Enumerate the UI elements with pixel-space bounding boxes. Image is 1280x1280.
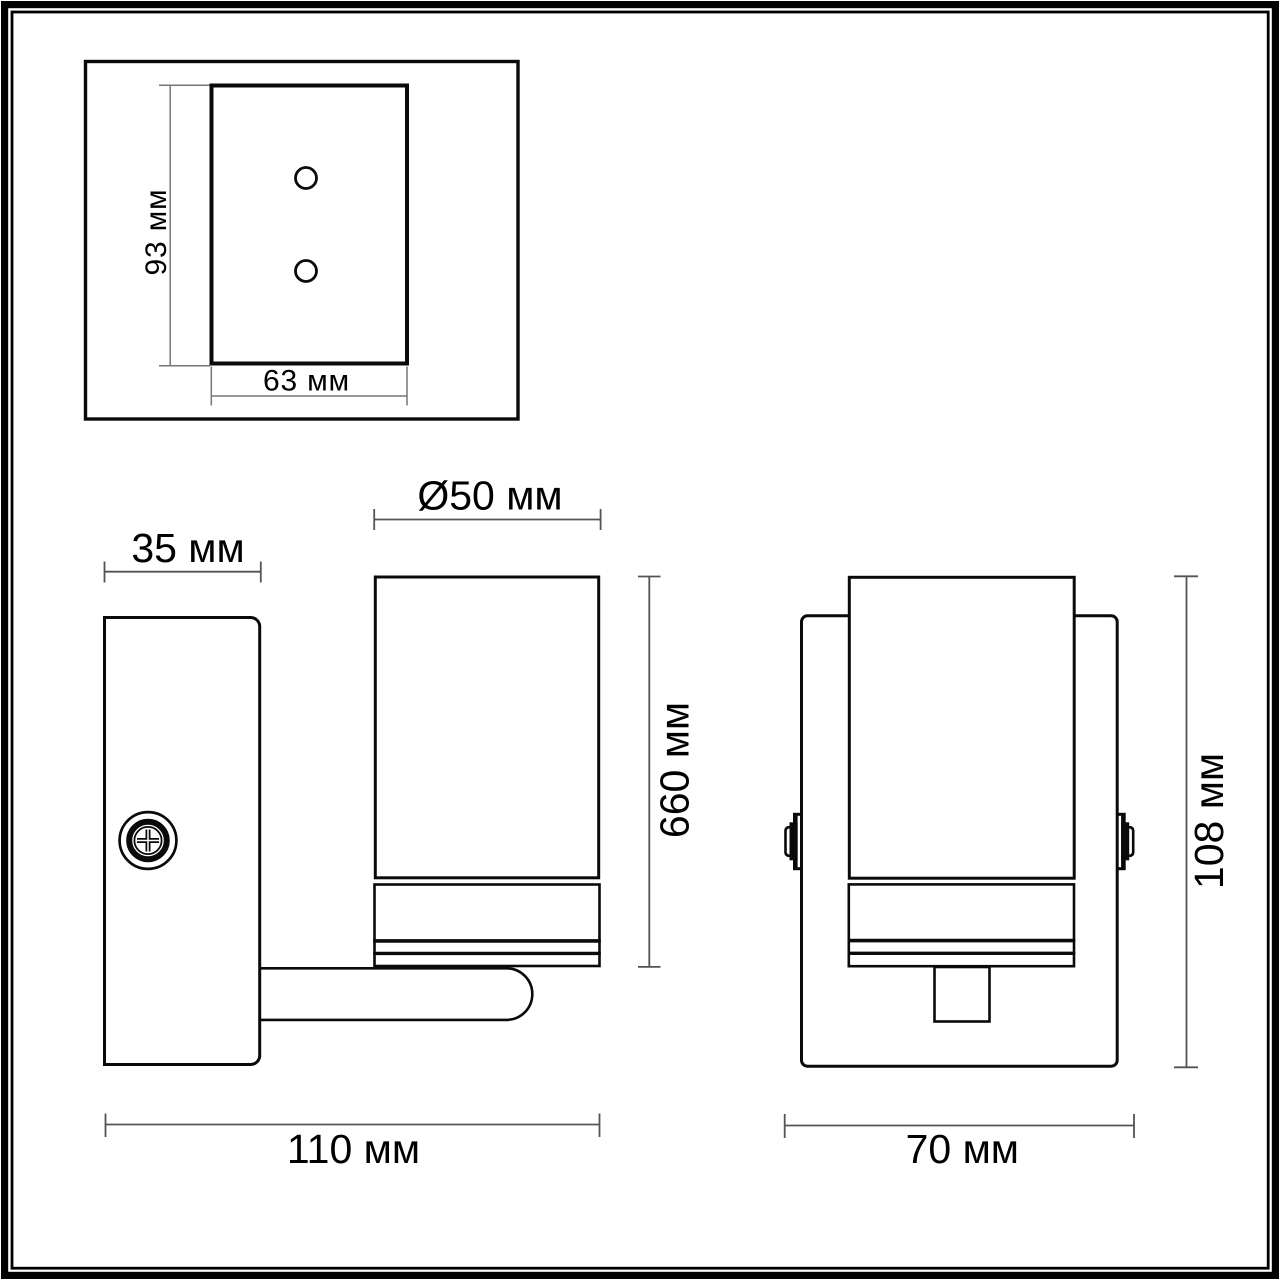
svg-text:63 мм: 63 мм [263, 365, 350, 398]
svg-text:660 мм: 660 мм [652, 702, 698, 838]
svg-text:70 мм: 70 мм [906, 1126, 1019, 1172]
svg-text:110 мм: 110 мм [287, 1126, 420, 1172]
svg-text:93 мм: 93 мм [140, 189, 173, 276]
svg-text:35 мм: 35 мм [131, 525, 244, 571]
svg-text:Ø50 мм: Ø50 мм [417, 473, 562, 519]
svg-text:108 мм: 108 мм [1186, 753, 1232, 889]
